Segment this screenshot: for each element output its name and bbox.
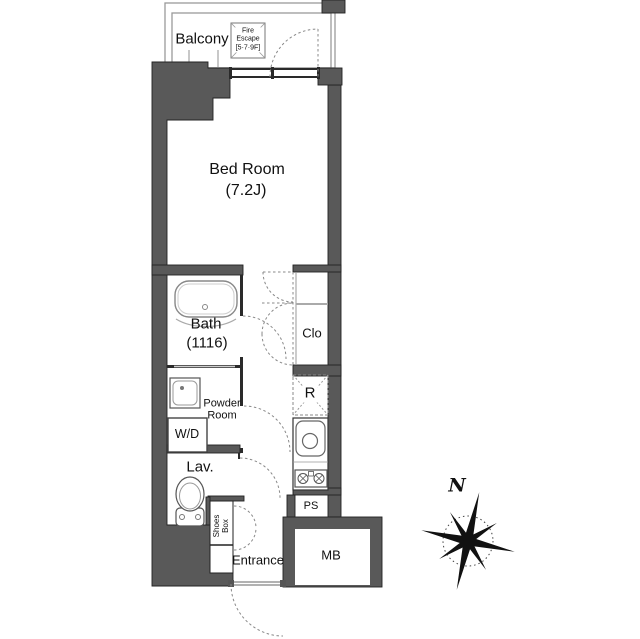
bedroom-size-label: (7.2J) <box>226 182 267 200</box>
toilet-icon <box>176 477 204 526</box>
refrigerator-label: R <box>303 386 318 403</box>
kitchen-sink-icon <box>296 421 325 456</box>
fire-escape-line1: Fire <box>236 27 261 35</box>
fire-escape-label: Fire Escape [5·7·9F] <box>235 27 262 52</box>
shoes-box-label: Shoes Box <box>212 515 230 538</box>
balcony-label: Balcony <box>175 32 228 49</box>
washer-dryer-label: W/D <box>175 427 199 441</box>
bedroom-label: Bed Room <box>209 161 285 179</box>
floorplan-drawing <box>0 0 640 639</box>
closet-label: Clo <box>302 327 322 342</box>
compass-icon <box>410 481 526 600</box>
lavatory-label: Lav. <box>186 460 213 477</box>
floorplan-canvas: Balcony Fire Escape [5·7·9F] Bed Room (7… <box>0 0 640 639</box>
pipe-space-label: PS <box>304 500 319 512</box>
bath-size-label: (1116) <box>186 336 227 353</box>
entrance-threshold <box>228 580 286 587</box>
window <box>229 67 320 79</box>
meter-box-label: MB <box>321 549 341 564</box>
bath-powder-opening <box>174 366 235 368</box>
fire-escape-line2: Escape <box>236 36 261 44</box>
fire-escape-line3: [5·7·9F] <box>236 44 261 52</box>
shoes-box-line1: Shoes <box>212 515 221 538</box>
washbasin-icon <box>170 378 200 408</box>
stove-icon <box>295 470 327 487</box>
powder-room-line2: Room <box>203 410 240 422</box>
shoes-box-line2: Box <box>221 515 230 538</box>
compass-north-label: N <box>448 475 465 496</box>
entrance-label: Entrance <box>232 554 284 569</box>
powder-room-label: Powder Room <box>203 398 240 423</box>
closet-details <box>293 272 328 365</box>
bath-label: Bath <box>191 317 222 334</box>
powder-room-line1: Powder <box>203 398 240 410</box>
